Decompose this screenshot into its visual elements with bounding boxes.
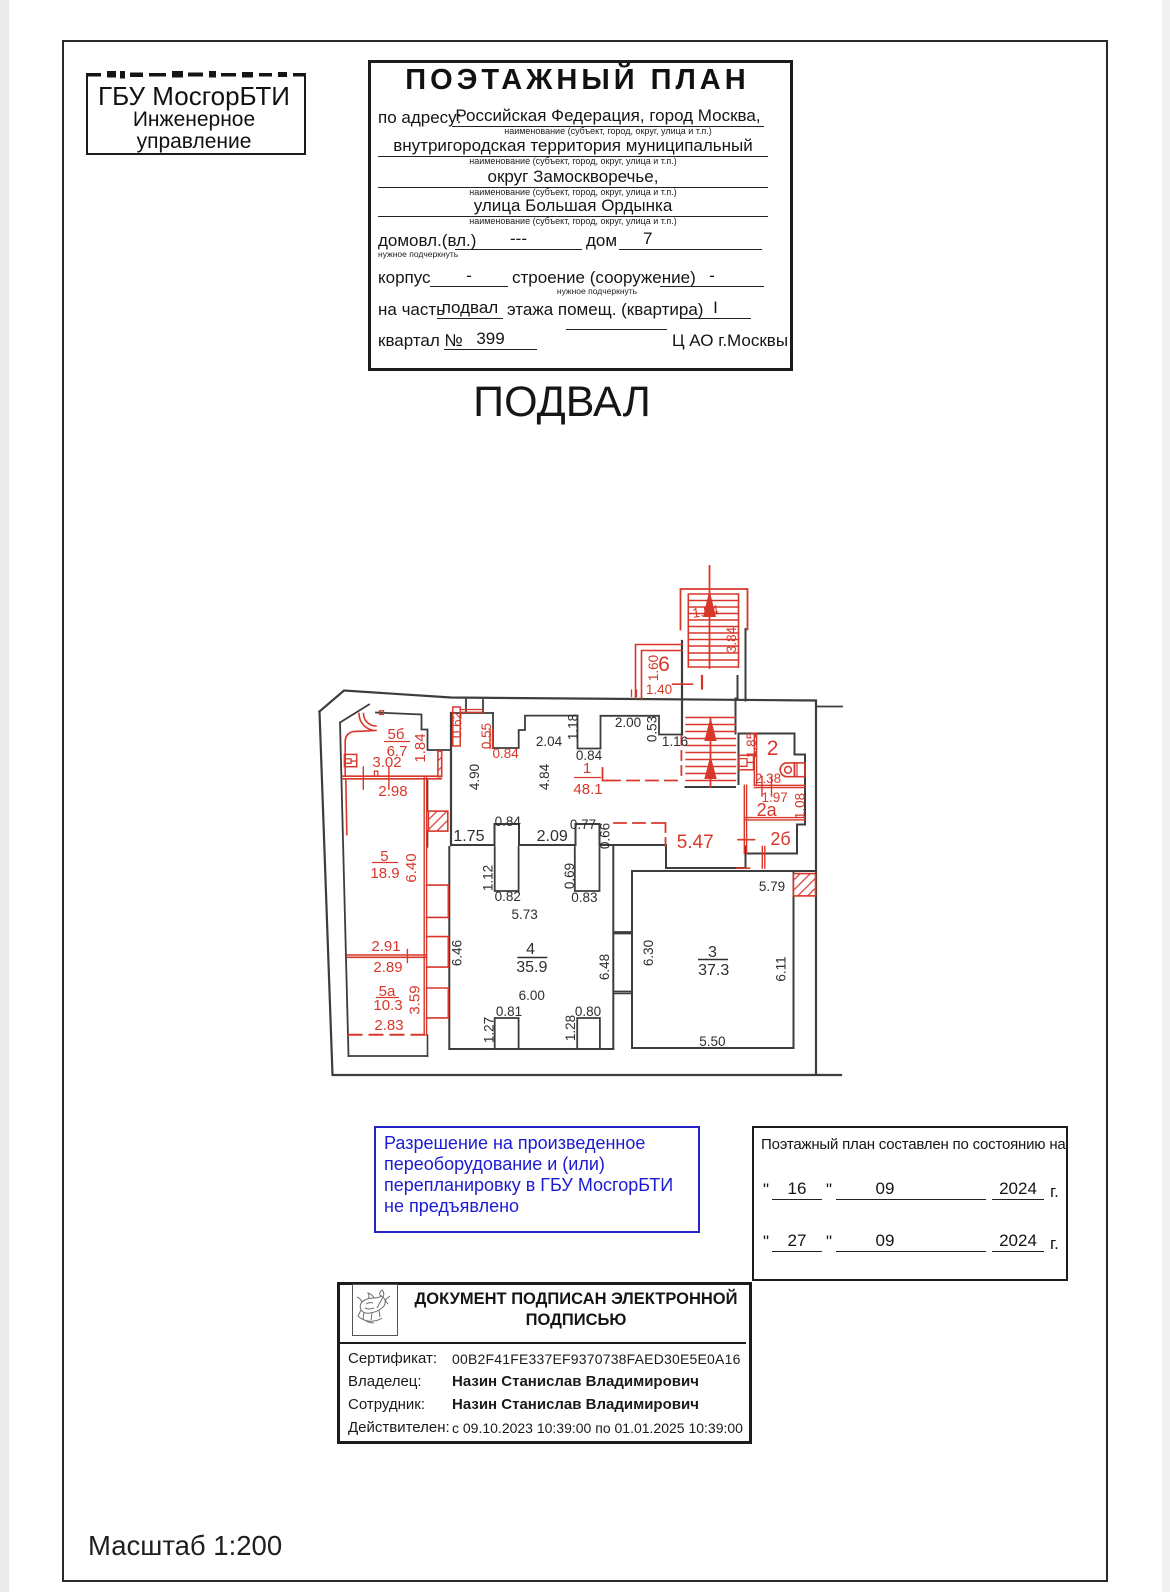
svg-text:6.40: 6.40	[403, 853, 420, 882]
svg-text:5.79: 5.79	[759, 879, 785, 894]
svg-text:2.09: 2.09	[537, 828, 568, 845]
svg-text:0.53: 0.53	[645, 716, 660, 742]
svg-text:3.02: 3.02	[372, 754, 401, 771]
svg-text:2а: 2а	[757, 800, 778, 820]
svg-text:1.84: 1.84	[691, 602, 720, 621]
svg-text:2.04: 2.04	[536, 734, 563, 749]
svg-text:0.62: 0.62	[449, 712, 464, 738]
svg-text:1.75: 1.75	[453, 828, 484, 845]
svg-text:0.81: 0.81	[496, 1004, 522, 1019]
svg-text:2.83: 2.83	[374, 1017, 403, 1034]
svg-text:0.82: 0.82	[495, 889, 521, 904]
svg-text:37.3: 37.3	[698, 962, 729, 979]
svg-text:0.84: 0.84	[495, 814, 522, 829]
svg-text:1.16: 1.16	[662, 734, 688, 749]
svg-text:1.85: 1.85	[744, 732, 759, 758]
svg-text:6.46: 6.46	[450, 940, 465, 966]
svg-text:1.40: 1.40	[646, 682, 672, 697]
svg-text:6.30: 6.30	[641, 940, 656, 966]
svg-text:6.48: 6.48	[597, 954, 612, 980]
svg-text:35.9: 35.9	[516, 959, 547, 976]
svg-text:1.84: 1.84	[412, 733, 429, 762]
svg-text:5.73: 5.73	[511, 907, 537, 922]
svg-text:10.3: 10.3	[373, 997, 402, 1014]
svg-text:6.11: 6.11	[774, 956, 789, 981]
svg-text:2б: 2б	[770, 829, 790, 849]
svg-text:3: 3	[708, 944, 717, 961]
svg-text:1.12: 1.12	[481, 865, 496, 891]
svg-text:5.47: 5.47	[677, 832, 714, 853]
svg-text:0.83: 0.83	[571, 890, 597, 905]
svg-text:0.66: 0.66	[598, 823, 613, 849]
svg-text:0.80: 0.80	[575, 1004, 601, 1019]
svg-text:3.59: 3.59	[407, 985, 424, 1014]
svg-text:1.08: 1.08	[793, 793, 808, 819]
svg-text:3.84: 3.84	[724, 626, 739, 653]
svg-text:6: 6	[658, 653, 670, 676]
svg-text:5б: 5б	[388, 726, 405, 743]
svg-text:1.18: 1.18	[566, 714, 581, 740]
svg-text:48.1: 48.1	[573, 781, 602, 798]
svg-text:1: 1	[583, 760, 591, 777]
svg-text:4: 4	[526, 941, 535, 958]
svg-text:2.00: 2.00	[615, 715, 641, 730]
svg-text:2: 2	[767, 737, 779, 760]
svg-text:2.91: 2.91	[371, 938, 400, 955]
svg-text:2.38: 2.38	[755, 771, 781, 786]
svg-text:18.9: 18.9	[370, 865, 399, 882]
svg-text:2.89: 2.89	[373, 959, 402, 976]
svg-text:4.84: 4.84	[537, 763, 552, 790]
svg-text:1.28: 1.28	[563, 1015, 578, 1041]
svg-text:2.98: 2.98	[378, 783, 407, 800]
svg-text:4.90: 4.90	[467, 764, 482, 790]
svg-text:1.27: 1.27	[482, 1017, 497, 1043]
svg-text:0.69: 0.69	[562, 863, 577, 889]
svg-text:0.84: 0.84	[492, 746, 519, 761]
svg-text:0.77: 0.77	[570, 817, 596, 832]
svg-text:5.50: 5.50	[699, 1034, 725, 1049]
svg-text:6.00: 6.00	[519, 988, 545, 1003]
